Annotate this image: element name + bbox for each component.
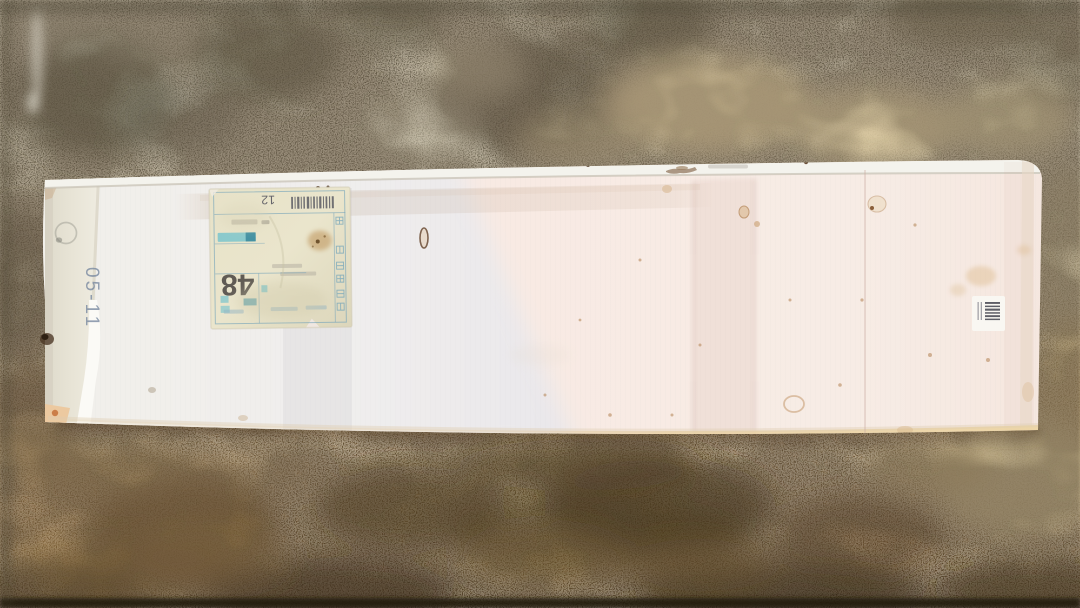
svg-text:05-11: 05-11: [81, 267, 102, 329]
svg-text:12: 12: [261, 193, 275, 207]
